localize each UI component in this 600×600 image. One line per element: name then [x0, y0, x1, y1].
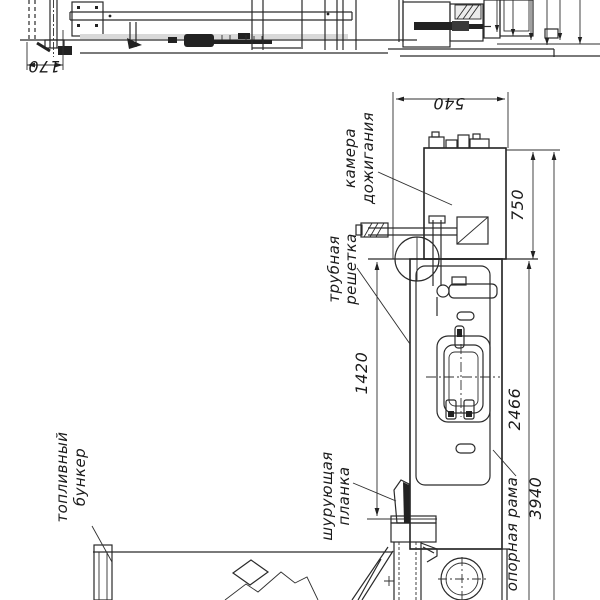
label-kamera-line1: камера — [341, 128, 359, 188]
dim-1420-text: 1420 — [352, 352, 371, 395]
dim-2466-text: 2466 — [505, 388, 524, 431]
label-toplivny-line1: топливный — [53, 432, 71, 523]
label-kamera-line2: дожигания — [359, 112, 377, 205]
label-shuruyushchaya-line2: планка — [335, 466, 353, 525]
label-opornaya: опорная рама — [503, 477, 521, 592]
dim-170-text: 170 — [28, 57, 60, 76]
label-toplivny-line2: бункер — [71, 448, 89, 506]
dim-750-text: 750 — [508, 189, 527, 221]
dim-540-text: 540 — [433, 94, 465, 113]
label-trubnaya-line2: решетка — [342, 233, 360, 306]
label-trubnaya-line1: трубная — [325, 235, 343, 302]
dim-3940-text: 3940 — [526, 477, 545, 520]
boiler-technical-drawing: 170 540 750 2466 3940 — [0, 0, 600, 600]
label-shuruyushchaya-line1: шурующая — [318, 451, 336, 540]
